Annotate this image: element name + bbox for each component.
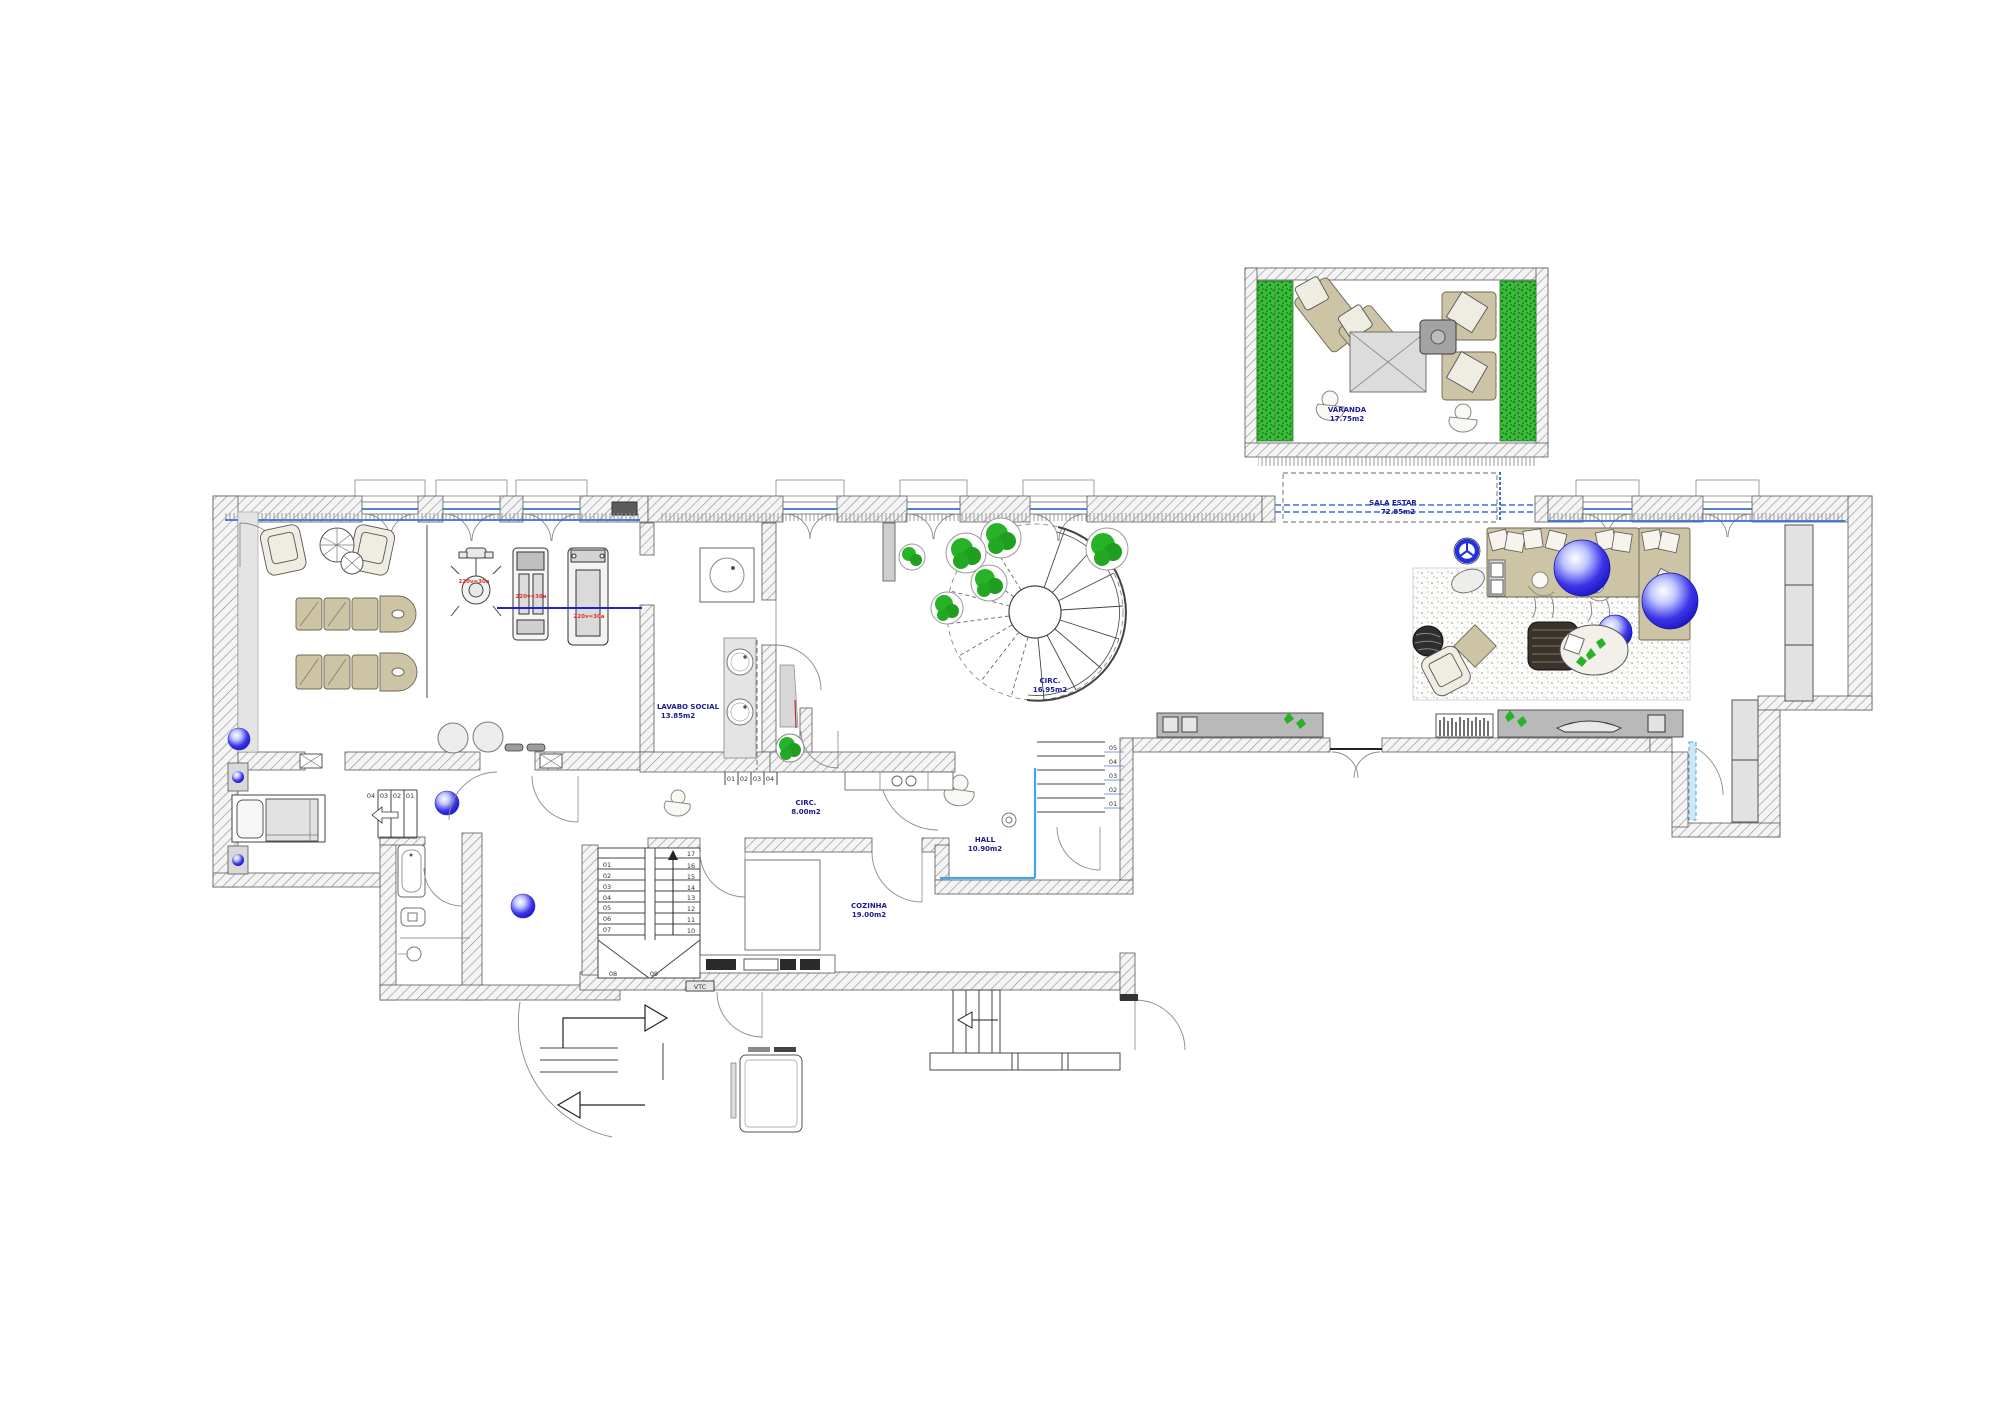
gym-power-label: 220v=30a: [573, 614, 604, 620]
light-sphere: [435, 791, 459, 815]
room-label-varanda: VARANDA: [1328, 406, 1367, 414]
kitchen-counter-bottom: [700, 955, 835, 973]
room-label-circ: CIRC.: [1040, 677, 1061, 685]
sala-estar: [1157, 521, 1845, 822]
room-area-circ-small: 8.00m2: [791, 808, 821, 816]
room-label-lavabo: LAVABO SOCIAL: [657, 703, 720, 711]
tv-console: [1498, 710, 1683, 737]
kitchen-counter-top: [845, 772, 953, 790]
vtc-box: VTC: [686, 981, 714, 991]
blue-sphere: [1642, 573, 1698, 629]
toilet: [401, 908, 425, 926]
person-figure: [664, 790, 690, 816]
svg-text:03: 03: [1109, 772, 1117, 780]
floor-plan: VARANDA 17.75m2 SALA ESTAR 72.85m2: [0, 0, 2000, 1414]
treadmill: [568, 548, 608, 645]
hall-steps: 05 04 03 02 01: [1037, 742, 1124, 812]
veranda-armchair: [1442, 352, 1496, 400]
svg-text:16: 16: [687, 862, 695, 870]
bookshelf: [1436, 714, 1493, 737]
svg-text:02: 02: [740, 775, 748, 783]
gym-power-label: 220v=30a: [515, 594, 546, 600]
svg-text:11: 11: [687, 916, 695, 924]
veranda: VARANDA 17.75m2: [1245, 268, 1548, 466]
svg-text:05: 05: [1109, 744, 1117, 752]
sideboard: [1157, 712, 1323, 737]
svg-text:VTC: VTC: [694, 983, 707, 991]
step-number: 08: [609, 970, 617, 978]
room-label-cozinha: COZINHA: [851, 902, 887, 910]
svg-text:17: 17: [687, 850, 695, 858]
speaker-box: [228, 846, 248, 874]
svg-text:10: 10: [687, 927, 695, 935]
svg-text:13: 13: [687, 894, 695, 902]
svg-text:04: 04: [766, 775, 774, 783]
room-area-lavabo: 13.85m2: [661, 712, 695, 720]
gym-power-label: 220v=30a: [458, 579, 489, 585]
floor-plan-drawing: VARANDA 17.75m2 SALA ESTAR 72.85m2: [0, 0, 2000, 1414]
svg-text:01: 01: [603, 861, 611, 869]
light-sphere: [511, 894, 535, 918]
sink: [398, 947, 421, 961]
wheel-ring: [1454, 538, 1480, 564]
massage-table: [296, 653, 417, 691]
step-number: 04: [367, 792, 375, 800]
left-wing: 220v=30a 220v=30a 220v=30a: [225, 512, 642, 768]
exercise-balls: [438, 722, 545, 753]
step-number: 03: [380, 792, 388, 800]
planter-right: [1500, 281, 1536, 441]
svg-text:14: 14: [687, 884, 695, 892]
step-number: 02: [393, 792, 401, 800]
svg-text:02: 02: [1109, 786, 1117, 794]
entrance-exterior: [518, 990, 1185, 1137]
exterior-steps: [930, 990, 1120, 1070]
svg-text:03: 03: [753, 775, 761, 783]
room-label-sala-estar: SALA ESTAR: [1369, 499, 1417, 507]
bathroom: [398, 845, 470, 961]
room-area-varanda: 17.75m2: [1330, 415, 1364, 423]
blue-sphere: [1554, 540, 1610, 596]
svg-text:01: 01: [1109, 800, 1117, 808]
step-number: 01: [406, 792, 414, 800]
wc-plant: [776, 734, 804, 762]
room-label-hall: HALL: [975, 836, 996, 844]
svg-text:02: 02: [603, 872, 611, 880]
sala-estar-zone: SALA ESTAR 72.85m2: [1283, 472, 1500, 522]
svg-text:05: 05: [603, 904, 611, 912]
bedroom-steps: 04 03 02 01: [367, 790, 417, 838]
planter-left: [1257, 281, 1293, 441]
svg-text:03: 03: [603, 883, 611, 891]
door-mat: [731, 1047, 802, 1132]
svg-text:01: 01: [727, 775, 735, 783]
double-door: [1330, 749, 1382, 778]
terrace-door: [1689, 742, 1723, 820]
main-stair: 0102 0304 0506 07 1716 1514 1312 1110 08…: [598, 848, 700, 978]
room-area-sala-estar: 72.85m2: [1381, 508, 1415, 516]
svg-text:12: 12: [687, 905, 695, 913]
room-area-cozinha: 19.00m2: [852, 911, 886, 919]
coffee-table: [1528, 622, 1628, 675]
svg-text:04: 04: [1109, 758, 1117, 766]
speaker-box: [228, 763, 248, 791]
room-label-circ-small: CIRC.: [796, 799, 817, 807]
light-sphere: [228, 728, 250, 750]
svg-text:06: 06: [603, 915, 611, 923]
armchair: [259, 523, 308, 576]
svg-text:04: 04: [603, 894, 611, 902]
room-area-circ: 16.95m2: [1033, 686, 1067, 694]
service-rooms: CIRC. 8.00m2 LAVANDARIA 3.65m2 COZINHA 1…: [686, 772, 953, 991]
bathtub: [398, 845, 425, 897]
massage-table: [296, 596, 416, 632]
window-ledges: [355, 480, 1759, 496]
svg-text:15: 15: [687, 873, 695, 881]
svg-text:07: 07: [603, 926, 611, 934]
bed: [232, 795, 325, 842]
room-area-hall: 10.90m2: [968, 845, 1002, 853]
step-number: 09: [650, 970, 658, 978]
